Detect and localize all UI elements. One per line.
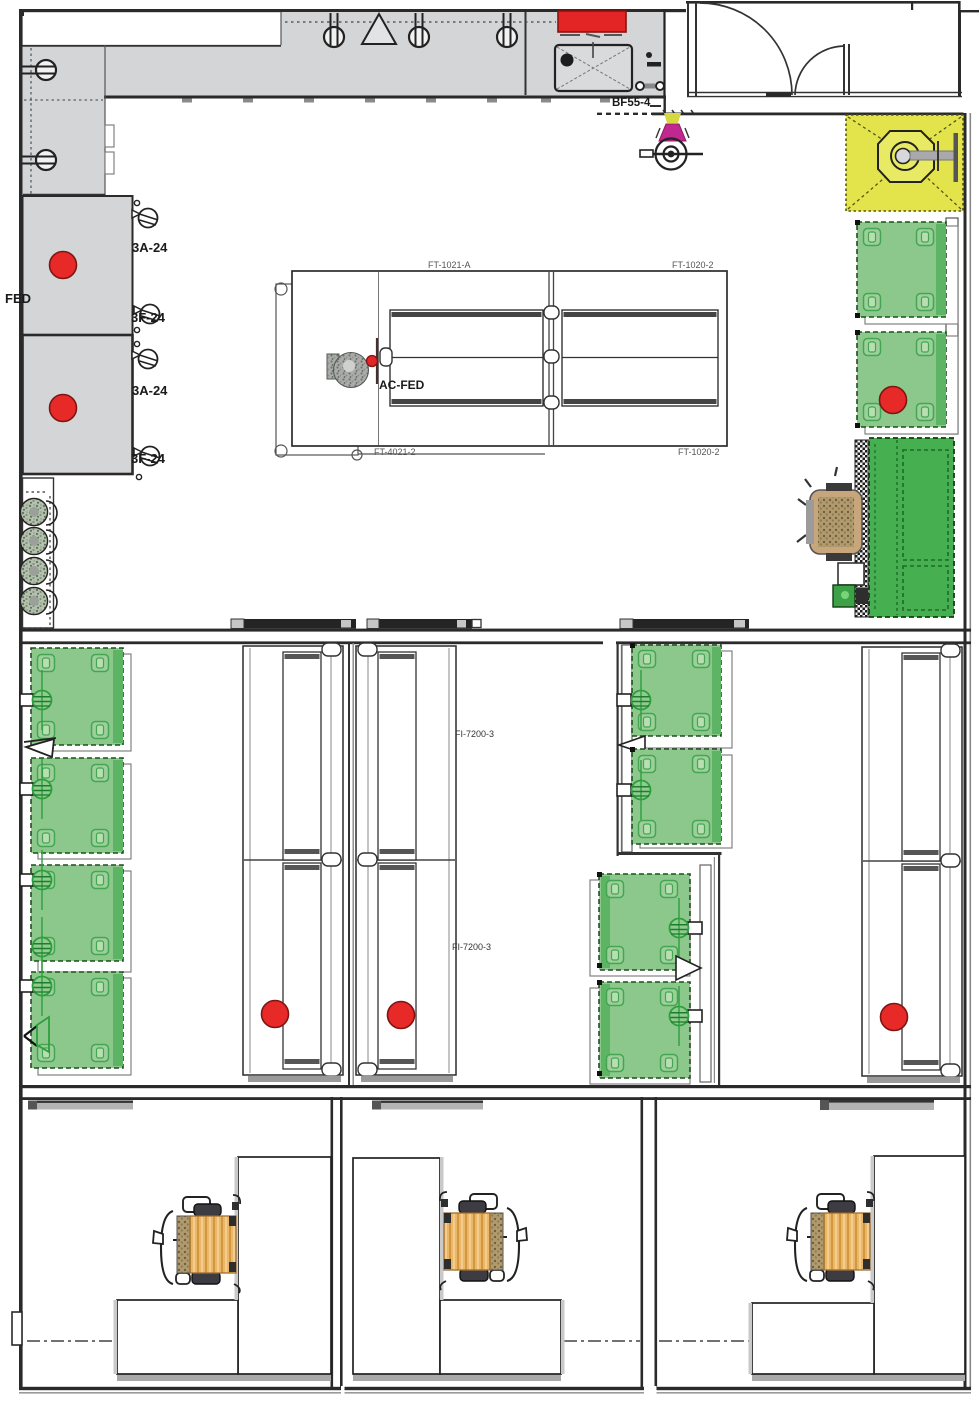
svg-text:AC-FED: AC-FED — [379, 378, 425, 392]
svg-text:FI-7200-3: FI-7200-3 — [455, 729, 494, 739]
svg-text:FT-1021-A: FT-1021-A — [428, 260, 471, 270]
svg-text:3A-24: 3A-24 — [132, 240, 168, 255]
svg-text:FT-1020-2: FT-1020-2 — [678, 447, 720, 457]
svg-text:FT-1020-2: FT-1020-2 — [672, 260, 714, 270]
svg-text:3F-24: 3F-24 — [131, 310, 166, 325]
svg-text:3F-24: 3F-24 — [131, 451, 166, 466]
svg-text:FI-7200-3: FI-7200-3 — [452, 942, 491, 952]
svg-text:FT-4021-2: FT-4021-2 — [374, 447, 416, 457]
svg-text:BF55-4: BF55-4 — [612, 97, 651, 109]
svg-text:FED: FED — [5, 291, 31, 306]
svg-text:3A-24: 3A-24 — [132, 383, 168, 398]
